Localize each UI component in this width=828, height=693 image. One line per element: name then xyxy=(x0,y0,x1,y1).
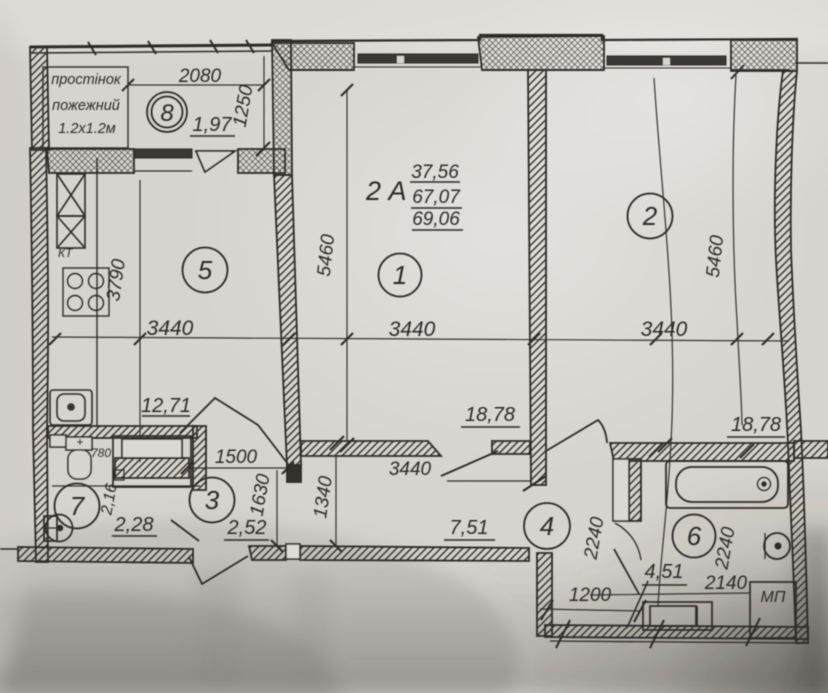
svg-text:3440: 3440 xyxy=(389,459,432,480)
svg-text:3: 3 xyxy=(205,485,220,515)
svg-text:2,28: 2,28 xyxy=(114,514,154,536)
svg-text:5: 5 xyxy=(198,255,213,285)
svg-text:7,51: 7,51 xyxy=(450,517,489,539)
svg-text:3440: 3440 xyxy=(147,317,194,340)
svg-text:1200: 1200 xyxy=(569,585,612,606)
svg-text:1: 1 xyxy=(393,260,407,290)
svg-text:4: 4 xyxy=(540,511,554,541)
svg-text:6: 6 xyxy=(687,521,702,551)
svg-text:67,07: 67,07 xyxy=(412,187,461,208)
svg-text:2: 2 xyxy=(642,201,658,231)
svg-text:3440: 3440 xyxy=(389,318,436,341)
svg-text:780: 780 xyxy=(91,446,111,460)
svg-text:2080: 2080 xyxy=(178,66,222,87)
svg-text:12,71: 12,71 xyxy=(141,395,191,417)
svg-text:3440: 3440 xyxy=(641,318,688,341)
svg-text:37,56: 37,56 xyxy=(411,162,459,183)
svg-text:18,78: 18,78 xyxy=(465,404,515,426)
svg-text:1.2х1.2м: 1.2х1.2м xyxy=(58,121,116,137)
svg-text:пожежний: пожежний xyxy=(52,98,120,114)
svg-text:1,97: 1,97 xyxy=(193,114,233,136)
svg-text:простінок: простінок xyxy=(51,72,122,88)
svg-text:2 А: 2 А xyxy=(365,176,407,206)
svg-text:1500: 1500 xyxy=(215,447,258,468)
svg-text:69,06: 69,06 xyxy=(412,209,460,230)
svg-text:2140: 2140 xyxy=(704,573,748,594)
svg-text:7: 7 xyxy=(70,491,86,521)
svg-text:КТ: КТ xyxy=(58,246,74,260)
svg-text:4,51: 4,51 xyxy=(645,561,684,583)
svg-text:МП: МП xyxy=(761,589,786,606)
svg-text:18,78: 18,78 xyxy=(731,414,781,436)
svg-text:2,52: 2,52 xyxy=(227,517,267,539)
svg-text:8: 8 xyxy=(160,100,174,127)
svg-text:5460: 5460 xyxy=(703,234,728,279)
svg-text:5460: 5460 xyxy=(314,233,339,278)
